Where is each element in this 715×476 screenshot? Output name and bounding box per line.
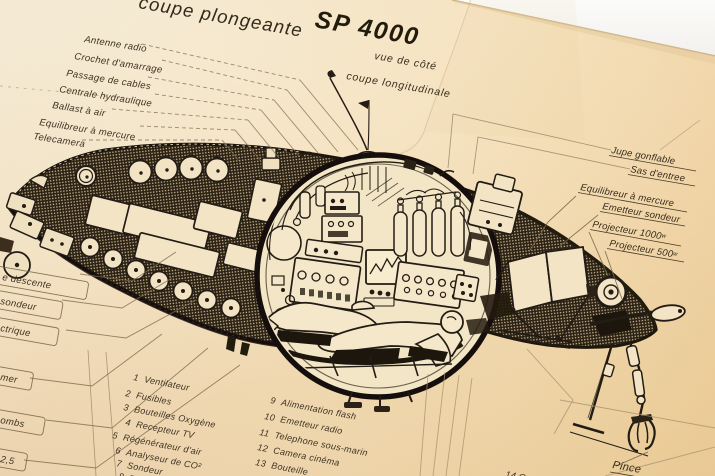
svg-text:2,5: 2,5 bbox=[0, 454, 16, 468]
